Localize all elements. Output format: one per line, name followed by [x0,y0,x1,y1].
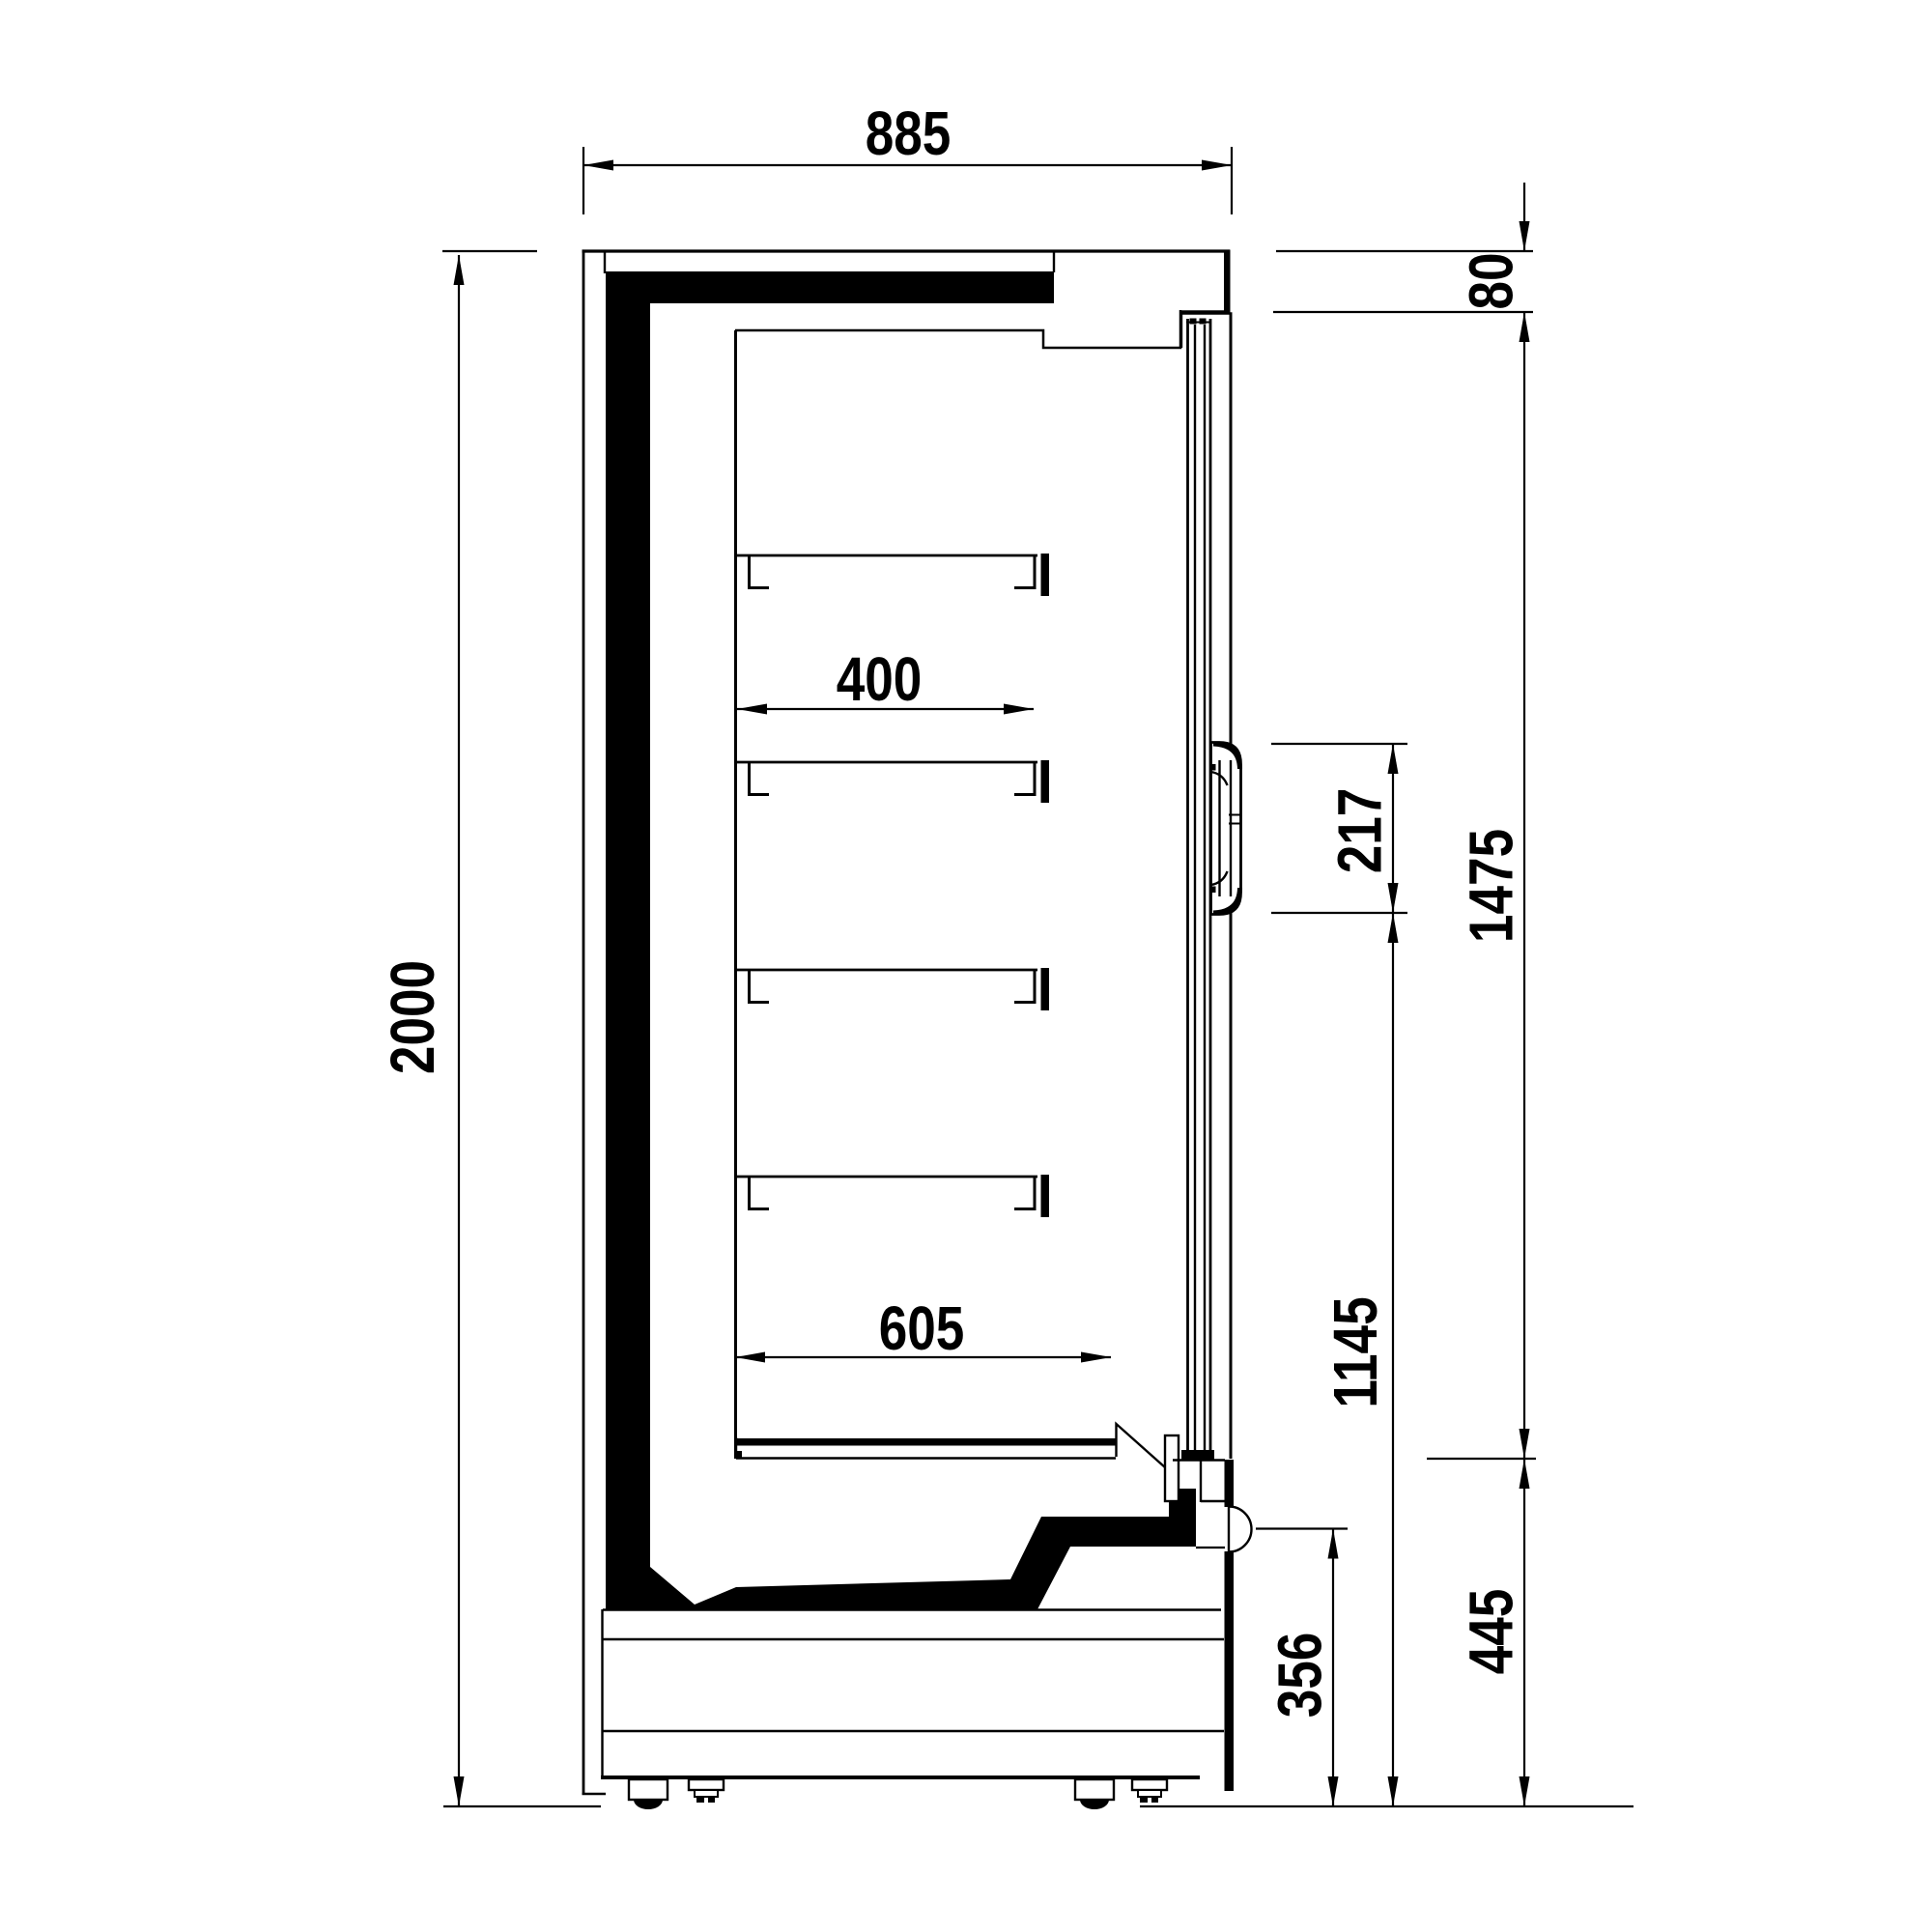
svg-text:356: 356 [1266,1633,1335,1719]
svg-text:445: 445 [1458,1589,1526,1675]
svg-text:80: 80 [1458,252,1526,309]
svg-text:1475: 1475 [1458,829,1526,943]
svg-text:217: 217 [1326,788,1395,874]
svg-text:2000: 2000 [379,960,447,1074]
svg-text:605: 605 [879,1294,965,1363]
svg-text:400: 400 [837,645,923,714]
svg-text:885: 885 [866,99,952,168]
svg-text:1145: 1145 [1321,1296,1390,1407]
